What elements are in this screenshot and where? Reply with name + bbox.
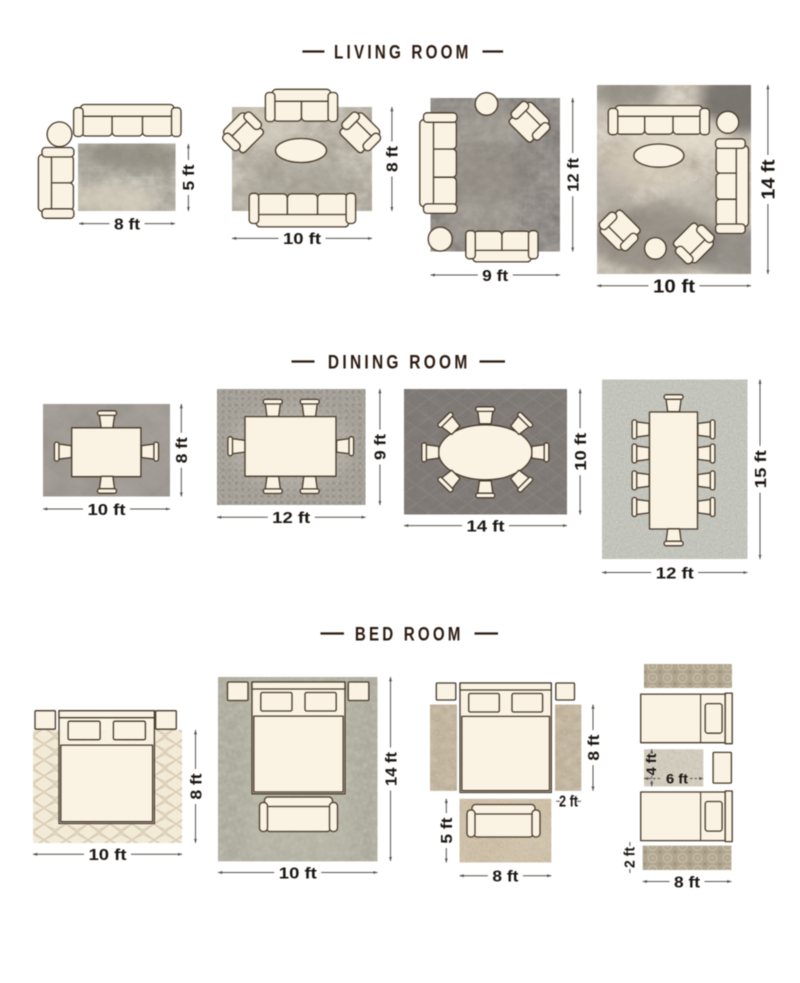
- svg-text:8 ft: 8 ft: [188, 773, 205, 800]
- svg-text:10 ft: 10 ft: [88, 502, 127, 519]
- svg-text:14 ft: 14 ft: [383, 751, 400, 786]
- svg-text:2 ft: 2 ft: [622, 847, 639, 868]
- svg-text:12 ft: 12 ft: [272, 510, 311, 527]
- svg-text:8 ft: 8 ft: [586, 734, 603, 761]
- svg-text:5 ft: 5 ft: [181, 164, 198, 191]
- svg-text:8 ft: 8 ft: [114, 216, 141, 233]
- svg-text:10 ft: 10 ft: [89, 847, 128, 864]
- svg-text:DINING ROOM: DINING ROOM: [328, 351, 471, 373]
- svg-text:8 ft: 8 ft: [492, 869, 519, 886]
- svg-text:5 ft: 5 ft: [439, 817, 456, 844]
- svg-text:10 ft: 10 ft: [279, 865, 318, 882]
- svg-text:10 ft: 10 ft: [573, 432, 590, 471]
- svg-text:8 ft: 8 ft: [174, 436, 191, 463]
- svg-text:14 ft: 14 ft: [467, 518, 506, 535]
- svg-text:9 ft: 9 ft: [373, 433, 390, 460]
- svg-text:BED ROOM: BED ROOM: [355, 623, 464, 645]
- svg-text:12 ft: 12 ft: [566, 157, 583, 192]
- svg-text:6 ft: 6 ft: [666, 772, 689, 787]
- svg-text:10 ft: 10 ft: [653, 276, 695, 296]
- svg-text:9 ft: 9 ft: [482, 268, 509, 285]
- svg-text:8 ft: 8 ft: [674, 874, 701, 891]
- svg-text:LIVING ROOM: LIVING ROOM: [334, 41, 472, 63]
- svg-text:10 ft: 10 ft: [283, 231, 322, 248]
- svg-text:12 ft: 12 ft: [656, 565, 695, 582]
- svg-text:8 ft: 8 ft: [385, 145, 402, 172]
- svg-text:14 ft: 14 ft: [758, 159, 778, 199]
- svg-text:4 ft: 4 ft: [644, 753, 659, 776]
- svg-text:15 ft: 15 ft: [753, 449, 770, 488]
- svg-text:2 ft: 2 ft: [559, 794, 578, 811]
